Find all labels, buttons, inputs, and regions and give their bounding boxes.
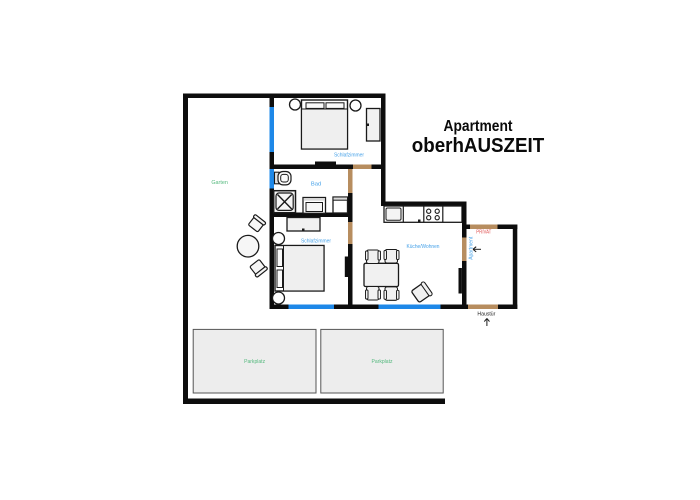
svg-text:Haustür: Haustür	[477, 312, 495, 318]
svg-text:Apartment: Apartment	[444, 118, 514, 135]
svg-text:oberhAUSZEIT: oberhAUSZEIT	[412, 135, 545, 157]
svg-text:Garten: Garten	[211, 180, 228, 186]
svg-text:Bad: Bad	[311, 182, 321, 188]
svg-text:Apartment: Apartment	[469, 236, 475, 259]
svg-text:Parkplatz: Parkplatz	[372, 359, 393, 365]
svg-text:Parkplatz: Parkplatz	[244, 359, 265, 365]
svg-text:PRIVAT: PRIVAT	[476, 230, 492, 236]
svg-text:Schlafzimmer: Schlafzimmer	[334, 153, 364, 159]
svg-text:Küche/Wohnen: Küche/Wohnen	[407, 244, 440, 250]
svg-text:Schlafzimmer: Schlafzimmer	[301, 239, 331, 245]
